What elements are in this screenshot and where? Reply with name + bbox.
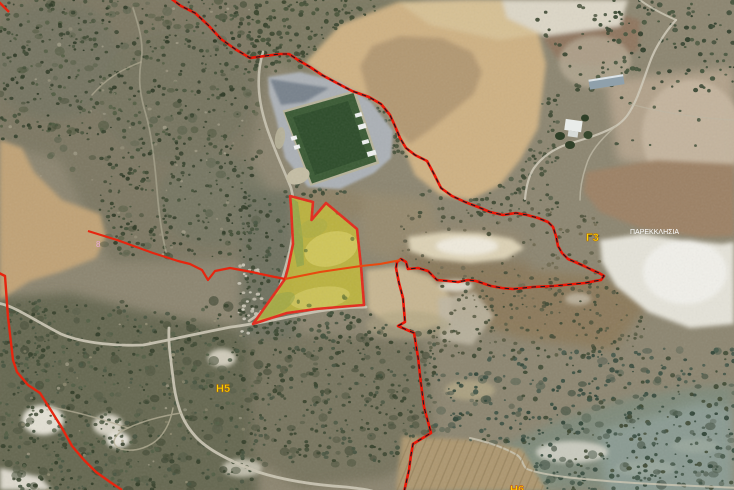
svg-text:Η5: Η5 [216, 383, 230, 395]
svg-text:8: 8 [96, 240, 101, 249]
svg-text:Γ3: Γ3 [586, 232, 599, 244]
svg-text:Η6: Η6 [510, 484, 524, 490]
svg-text:ΠΑΡΕΚΚΛΗΣΙΑ: ΠΑΡΕΚΚΛΗΣΙΑ [630, 229, 679, 236]
